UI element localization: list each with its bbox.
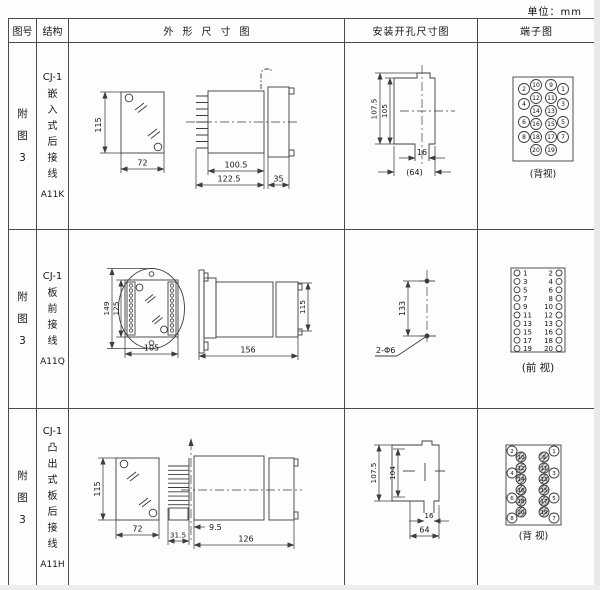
unit-label: 单位：mm (528, 3, 582, 18)
view-label: (背 视) (519, 530, 548, 542)
terminal-pin-number: 20 (518, 510, 525, 516)
fig-no-cell: 附 图 3 (9, 43, 37, 230)
terminal-pin-number: 12 (532, 95, 540, 102)
terminal-pin-number: 7 (523, 295, 527, 303)
strip-dot (170, 299, 173, 302)
terminal-pin (514, 337, 520, 343)
dim-label: 9.5 (209, 523, 222, 532)
header-fig-no: 图号 (9, 19, 37, 43)
a11h-outline-drawing: 115 72 (69, 409, 344, 587)
mounting-hole-icon (120, 460, 128, 468)
terminal-pin-number: 18 (532, 134, 540, 141)
terminal-pin-number: 13 (523, 320, 532, 328)
glass-hatch (135, 103, 160, 139)
terminal-pin-number: 11 (541, 466, 548, 472)
terminal-pin-number: 11 (547, 95, 555, 102)
a11k-terminal-drawing: 1012141618209111315171924681357 (背视) (478, 43, 595, 229)
outline-cell: 115 72 (69, 43, 345, 230)
page-edge (594, 0, 600, 590)
terminal-pin-number: 18 (518, 499, 525, 505)
screw-icon (149, 272, 154, 277)
dim-label: 35 (273, 175, 283, 184)
terminal-pins: 1357911131517192468101213161820 (514, 270, 562, 354)
terminal-pin-number: 19 (523, 345, 532, 353)
mounting-cell: 107.5 104 16 64 (345, 409, 478, 588)
header-structure: 结构 (37, 19, 69, 43)
a11h-cutout-drawing: 107.5 104 16 64 (345, 409, 477, 587)
terminal-cell: 1012141618209111315171924681357 (背 视) (478, 409, 596, 588)
dim-label: 105 (144, 344, 159, 353)
type-code: A11K (41, 190, 65, 200)
terminal-pin-number: 4 (522, 101, 526, 108)
terminal-pin (556, 295, 562, 301)
a11q-holes-drawing: 133 2-Φ6 (345, 230, 477, 408)
datasheet-page: 单位：mm 图号 结构 外形尺寸图 安装开孔尺寸图 端子图 附 图 3 CJ-1… (0, 0, 600, 590)
terminal-pin-number: 10 (532, 82, 540, 89)
glass-hatch (145, 295, 163, 325)
structure-text: 嵌 入 式 后 接 线 (48, 87, 58, 183)
a11k-side-view: 100.5 122.5 35 (186, 69, 298, 189)
terminal-pin-number: 19 (547, 147, 555, 154)
fig-no-cell: 附 图 3 (9, 409, 37, 588)
terminal-pin-number: 4 (510, 471, 514, 477)
terminal-pin-number: 17 (523, 337, 532, 345)
cutout-outline (394, 73, 435, 161)
strip-dot (170, 309, 173, 312)
terminal-pin-number: 10 (544, 303, 553, 311)
terminal-pin (514, 304, 520, 310)
strip-dot (170, 304, 173, 307)
terminal-pin-number: 16 (518, 488, 525, 494)
structure-cell: CJ-1 凸 出 式 板 后 接 线 A11H (37, 409, 69, 588)
dim-label: 156 (240, 346, 255, 355)
terminal-pin-number: 18 (544, 337, 553, 345)
header-outline-label: 外形尺寸图 (155, 27, 259, 38)
terminal-pin-number: 2 (510, 449, 514, 455)
terminal-pin-number: 20 (532, 147, 540, 154)
terminal-pin (556, 312, 562, 318)
a11h-front-view: 115 72 (93, 458, 159, 539)
terminal-pins: 1012141618209111315171924681357 (519, 80, 569, 156)
strip-dot (129, 299, 132, 302)
terminal-pin-number: 3 (561, 101, 565, 108)
terminal-pin-number: 2 (549, 270, 553, 278)
terminal-pin (514, 346, 520, 352)
dim-label: 115 (94, 117, 103, 132)
terminal-pin-number: 13 (547, 108, 555, 115)
terminal-pin-number: 11 (523, 312, 532, 320)
view-label: (前 视) (522, 361, 555, 374)
dim-label: 100.5 (225, 161, 248, 170)
terminal-pin-number: 6 (522, 119, 526, 126)
dim-label: 16 (417, 148, 427, 157)
flange-outline (119, 269, 185, 349)
terminal-pin-number: 20 (544, 345, 553, 353)
terminal-pin-number: 5 (523, 286, 527, 294)
terminal-pin (514, 295, 520, 301)
terminal-pin-number: 1 (561, 86, 565, 93)
cutout-outline (392, 441, 439, 513)
header-mounting-label: 安装开孔尺寸图 (373, 27, 450, 38)
mounting-hole-icon (149, 509, 157, 517)
mounting-hole-icon (154, 143, 162, 151)
strip-dot (129, 324, 132, 327)
strip-dot (170, 314, 173, 317)
terminal-pin (514, 329, 520, 335)
dim-label: 149 (102, 301, 111, 315)
strip-dot (170, 284, 173, 287)
strip-dot (129, 294, 132, 297)
strip-dot (129, 319, 132, 322)
strip-dot (129, 309, 132, 312)
a11q-front-view: 149 125 105 (102, 269, 185, 359)
dim-label: 16 (424, 511, 434, 520)
latch-hook (261, 69, 271, 89)
terminal-pin-number: 1 (523, 270, 527, 278)
dim-label: 107.5 (369, 463, 378, 484)
terminal-pin-number: 15 (541, 488, 548, 494)
strip-dot (170, 289, 173, 292)
mounting-hole-icon (161, 326, 168, 333)
fig-no-cell: 附 图 3 (9, 230, 37, 409)
fig-no-text: 附 图 3 (9, 103, 36, 169)
terminal-pin-number: 7 (561, 134, 565, 141)
terminal-pin-number: 14 (532, 108, 540, 115)
terminal-pin-number: 17 (547, 134, 555, 141)
dim-label: 72 (137, 159, 147, 168)
mounting-cell: 107.5 105 16 (64) (345, 43, 478, 230)
strip-dot (129, 314, 132, 317)
terminal-pin-number: 17 (541, 499, 548, 505)
terminal-pin-number: 9 (523, 303, 527, 311)
dim-label: 125 (112, 302, 121, 316)
dim-label: 31.5 (170, 531, 186, 540)
terminal-pin-number: 3 (552, 471, 556, 477)
structure-cell: CJ-1 嵌 入 式 后 接 线 A11K (37, 43, 69, 230)
terminal-pin (514, 312, 520, 318)
a11q-terminal-drawing: 1357911131517192468101213161820 (前 视) (478, 230, 595, 408)
a11q-outline-drawing: 149 125 105 (69, 230, 344, 408)
glass-hatch (127, 472, 151, 507)
terminal-pin-number: 6 (549, 286, 554, 294)
a11k-cutout-drawing: 107.5 105 16 (64) (345, 43, 477, 229)
fig-no-text: 附 图 3 (9, 465, 36, 531)
terminal-cell: 1012141618209111315171924681357 (背视) (478, 43, 596, 230)
terminal-pin-number: 5 (561, 119, 565, 126)
terminal-pin-number: 15 (547, 121, 555, 128)
header-outline: 外形尺寸图 (69, 19, 345, 43)
strip-dot (170, 329, 173, 332)
terminal-pin (556, 287, 562, 293)
board-arrow-icon (189, 438, 194, 446)
header-fig-label: 图号 (13, 27, 33, 38)
terminal-pin (556, 270, 562, 276)
table-row-a11k: 附 图 3 CJ-1 嵌 入 式 后 接 线 A11K 115 (9, 43, 596, 230)
dim-label: 115 (93, 481, 102, 496)
terminal-pin-number: 8 (510, 516, 514, 522)
terminal-pin-number: 9 (542, 455, 546, 461)
dimension-table: 图号 结构 外形尺寸图 安装开孔尺寸图 端子图 附 图 3 CJ-1 嵌 入 式… (8, 18, 596, 588)
terminal-pin (514, 278, 520, 284)
terminal-cell: 1357911131517192468101213161820 (前 视) (478, 230, 596, 409)
terminal-pin-number: 10 (518, 455, 525, 461)
terminal-pin-number: 4 (549, 278, 554, 286)
strip-dot (170, 294, 173, 297)
header-terminal: 端子图 (478, 19, 596, 43)
terminal-pin (556, 320, 562, 326)
terminal-pin-number: 15 (523, 328, 532, 336)
dim-label: 126 (238, 535, 253, 544)
header-mounting: 安装开孔尺寸图 (345, 19, 478, 43)
terminal-pin-number: 5 (552, 496, 556, 502)
terminal-pin-number: 6 (510, 496, 514, 502)
type-code: A11Q (40, 357, 65, 367)
terminal-pin-number: 19 (541, 510, 548, 516)
dim-label: 72 (132, 525, 142, 534)
terminal-pin-number: 2 (522, 86, 526, 93)
terminal-pin (556, 337, 562, 343)
strip-dot (129, 304, 132, 307)
terminal-pin-number: 13 (541, 477, 548, 483)
dim-label: 107.5 (370, 99, 379, 120)
model-label: CJ-1 (43, 426, 63, 437)
structure-cell: CJ-1 板 前 接 线 A11Q (37, 230, 69, 409)
a11q-side-view: 115 156 (199, 270, 312, 360)
hole-callout: 2-Φ6 (376, 346, 395, 355)
page-edge (0, 585, 600, 590)
terminal-pin (556, 346, 562, 352)
terminal-pin (556, 329, 562, 335)
model-label: CJ-1 (43, 271, 63, 282)
terminal-pin (514, 287, 520, 293)
terminal-pin (556, 304, 562, 310)
strip-dot (129, 289, 132, 292)
terminal-pin-number: 12 (544, 312, 553, 320)
model-label: CJ-1 (43, 72, 63, 83)
dim-label: 104 (388, 466, 397, 480)
header-terminal-label: 端子图 (520, 27, 553, 38)
strip-dot (129, 284, 132, 287)
terminal-pin-number: 7 (552, 516, 556, 522)
dim-label: 122.5 (218, 175, 241, 184)
terminal-strip-dots (129, 284, 132, 332)
terminal-pin-number: 3 (523, 278, 527, 286)
outline-cell: 149 125 105 (69, 230, 345, 409)
terminal-pin-number: 16 (532, 121, 540, 128)
terminal-pin-number: 16 (544, 328, 553, 336)
mounting-cell: 133 2-Φ6 (345, 230, 478, 409)
dim-label: 64 (419, 526, 429, 535)
terminal-pin (514, 270, 520, 276)
terminal-pin-number: 1 (552, 449, 556, 455)
fig-no-text: 附 图 3 (9, 286, 36, 352)
dim-label: 115 (298, 300, 307, 314)
strip-dot (170, 324, 173, 327)
table-row-a11q: 附 图 3 CJ-1 板 前 接 线 A11Q (9, 230, 596, 409)
a11h-terminal-drawing: 1012141618209111315171924681357 (背 视) (478, 409, 595, 587)
strip-dot (129, 329, 132, 332)
dim-label: (64) (406, 168, 422, 177)
strip-dot (170, 319, 173, 322)
structure-text: 板 前 接 线 (48, 286, 58, 350)
structure-text: 凸 出 式 板 后 接 线 (48, 441, 58, 553)
terminal-strip-dots (170, 284, 173, 332)
a11h-side-view: 9.5 31.5 126 (168, 438, 302, 549)
terminal-pin (514, 320, 520, 326)
dim-label: 105 (380, 104, 389, 118)
terminal-pins: 1012141618209111315171924681357 (507, 446, 559, 523)
a11k-front-view: 115 72 (94, 92, 164, 173)
terminal-pin-number: 14 (518, 477, 525, 483)
dim-label: 133 (398, 301, 407, 316)
view-label: (背视) (530, 168, 556, 180)
a11k-outline-drawing: 115 72 (69, 43, 344, 229)
terminal-pin-number: 8 (549, 295, 553, 303)
terminal-pin-number: 8 (522, 134, 526, 141)
terminal-pins-side (168, 466, 189, 505)
table-header-row: 图号 结构 外形尺寸图 安装开孔尺寸图 端子图 (9, 19, 596, 43)
mounting-hole-icon (125, 94, 133, 102)
type-code: A11H (40, 560, 64, 570)
header-structure-label: 结构 (43, 27, 63, 38)
table-row-a11h: 附 图 3 CJ-1 凸 出 式 板 后 接 线 A11H 115 (9, 409, 596, 588)
mounting-hole-icon (136, 284, 143, 291)
terminal-pin-number: 9 (549, 82, 553, 89)
terminal-pin-number: 12 (518, 466, 525, 472)
outline-cell: 115 72 (69, 409, 345, 588)
terminal-pin (556, 278, 562, 284)
terminal-pin-number: 13 (544, 320, 553, 328)
